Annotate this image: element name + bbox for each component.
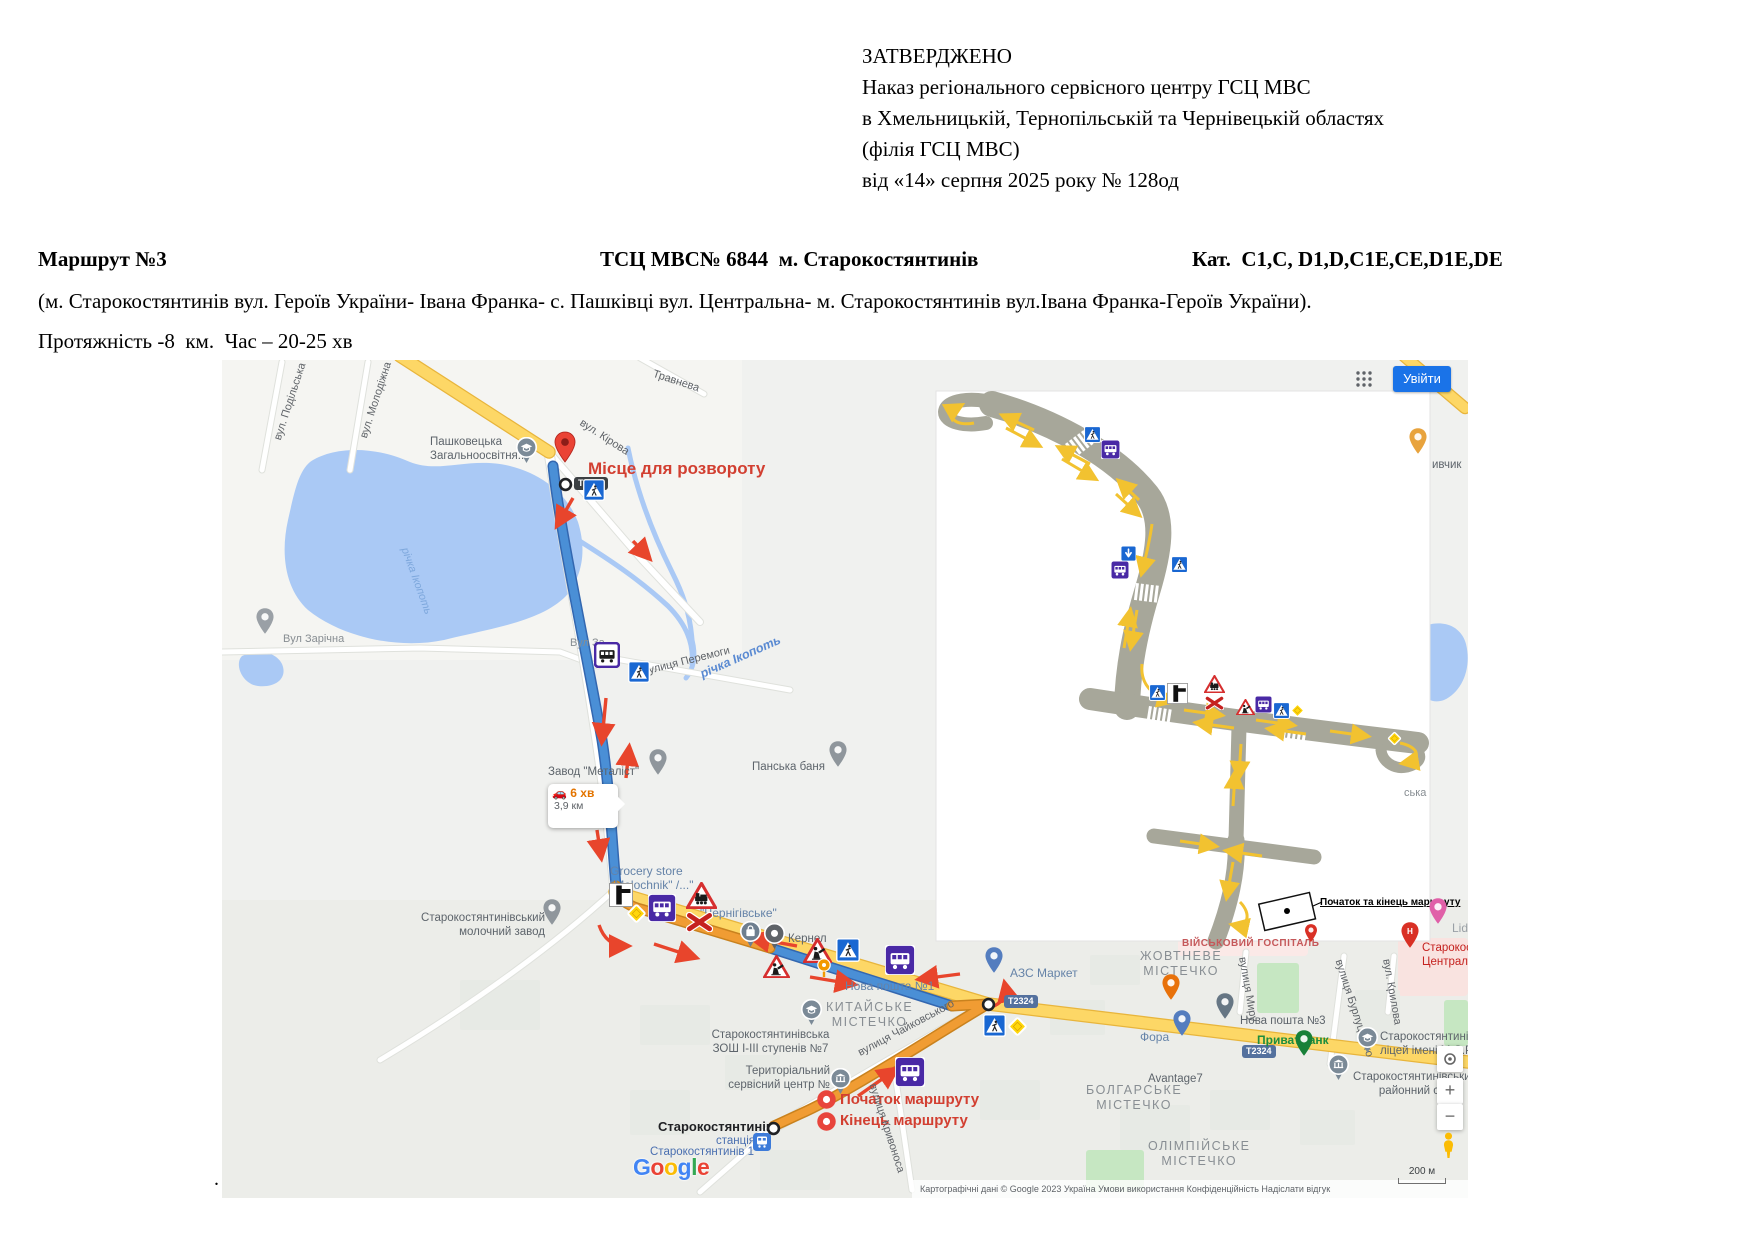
map-label: Нова пошта №1 [845, 979, 934, 993]
google-logo-letter: e [697, 1154, 709, 1180]
map-label: Місце для розвороту [588, 459, 765, 479]
route-start-marker [816, 1089, 837, 1110]
map-label: Територіальний сервісний центр № [704, 1065, 830, 1092]
map-label: Початок маршруту [840, 1091, 979, 1109]
hospital-pin[interactable]: H [1400, 921, 1420, 949]
document-page: ЗАТВЕРДЖЕНО Наказ регіонального сервісно… [0, 0, 1755, 1240]
route-category: Кат. С1,С, D1,D,С1Е,СЕ,D1Е,DE [1192, 247, 1503, 272]
map-label: Старокостянтинівський молочний завод [363, 912, 545, 939]
map-label: Старокостя Центральн [1422, 942, 1468, 969]
bank-pin[interactable] [1294, 1029, 1314, 1057]
banya-pin[interactable] [828, 740, 848, 768]
travel-time-callout[interactable]: 🚗 6 хв 3,9 км [548, 784, 618, 828]
signin-button[interactable]: Увійти [1393, 366, 1451, 392]
route-length: Протяжність -8 км. Час – 20-25 хв [38, 329, 353, 354]
school-pin[interactable] [515, 437, 538, 464]
store-pin[interactable] [1172, 1009, 1192, 1037]
map-label: Старокостянтинівська ЗОШ І-ІІІ ступенів … [698, 1029, 843, 1056]
kernel-pin[interactable] [763, 923, 786, 950]
approval-line: Наказ регіонального сервісного центру ГС… [862, 75, 1311, 100]
route-point [981, 997, 996, 1012]
attribution-bar: Картографічні дані © Google 2023 Україна… [912, 1180, 1468, 1198]
zoom-in-button[interactable]: + [1437, 1078, 1463, 1104]
direction-sign-icon [1121, 546, 1136, 561]
route-point [766, 1121, 781, 1136]
map-label: Lider [1452, 921, 1468, 935]
hospital-pin[interactable] [1304, 923, 1318, 943]
route-point [558, 477, 573, 492]
minor-road-junction-sign-icon [1167, 683, 1188, 704]
svg-text:H: H [1407, 927, 1413, 936]
my-location-button[interactable] [1437, 1046, 1463, 1072]
bus-stop-sign-icon [895, 1057, 925, 1087]
railway-crossing-sign-icon [686, 882, 717, 909]
bus-stop-sign-icon [594, 642, 620, 668]
callout-distance: 3,9 км [554, 800, 614, 812]
map-scale: 200 м [1398, 1166, 1446, 1184]
map-label: АЗС Маркет [1010, 966, 1078, 980]
roadworks-sign-icon [1236, 699, 1255, 716]
pedestrian-crossing-sign-icon [836, 938, 860, 962]
map-label: ПриватБанк [1257, 1033, 1329, 1047]
map-label: ська [1404, 787, 1426, 800]
pedestrian-crossing-sign-icon [628, 661, 650, 683]
google-logo: Google [633, 1154, 709, 1181]
map-label: БОЛГАРСЬКЕ МІСТЕЧКО [1086, 1083, 1182, 1113]
priority-road-sign-icon [1290, 703, 1305, 718]
zoom-out-button[interactable]: − [1437, 1104, 1463, 1130]
single-track-railway-cross-sign-icon [686, 912, 713, 932]
priority-road-sign-icon [1007, 1016, 1028, 1037]
route-end-marker [816, 1111, 837, 1132]
map-label: Нова пошта №3 [1240, 1015, 1326, 1029]
pedestrian-crossing-sign-icon [1149, 684, 1166, 701]
uturn-marker-pin[interactable] [553, 431, 577, 463]
attribution-text: Картографічні дані © Google 2023 Україна… [920, 1184, 1330, 1194]
scale-bar [1398, 1178, 1446, 1184]
map-label: ВІЙСЬКОВИЙ ГОСПІТАЛЬ [1182, 938, 1319, 950]
school-pin[interactable] [800, 999, 823, 1026]
priority-road-sign-icon [626, 903, 647, 924]
map-label: Т2324 [1004, 995, 1038, 1008]
lyceum-pin[interactable] [1356, 1027, 1379, 1054]
scale-label: 200 м [1409, 1166, 1435, 1177]
single-track-railway-cross-sign-icon [1205, 696, 1224, 710]
priority-road-sign-icon [1387, 731, 1402, 746]
map-label: ОЛІМПІЙСЬКЕ МІСТЕЧКО [1148, 1139, 1250, 1169]
roadworks-sign-icon [763, 955, 790, 979]
car-icon: 🚗 [552, 786, 567, 800]
map-label: Пашковецька Загальноосвітня... [430, 436, 527, 463]
pedestrian-crossing-sign-icon [1273, 702, 1290, 719]
map-label: ЖОВТНЕВЕ МІСТЕЧКО [1140, 949, 1222, 979]
pedestrian-crossing-sign-icon [1171, 556, 1188, 573]
place-pin[interactable] [255, 607, 275, 635]
dairy-plant-pin[interactable] [542, 898, 562, 926]
google-logo-letter: g [678, 1154, 692, 1180]
orange-balloon-marker-icon [816, 958, 832, 978]
pegman-icon[interactable] [1441, 1132, 1456, 1159]
approval-line: в Хмельницькій, Тернопільській та Чернів… [862, 106, 1384, 131]
bus-stop-sign-icon [1255, 696, 1272, 713]
map-label: Вул Зарічна [283, 633, 344, 646]
shop-pin[interactable] [739, 921, 762, 948]
gas-station-pin[interactable] [984, 946, 1004, 974]
google-logo-letter: o [650, 1154, 664, 1180]
route-number: Маршрут №3 [38, 247, 167, 272]
approval-line: ЗАТВЕРДЖЕНО [862, 44, 1012, 69]
route-description: (м. Старокостянтинів вул. Героїв України… [38, 289, 1312, 314]
pedestrian-crossing-sign-icon [583, 479, 605, 501]
bus-stop-sign-icon [1101, 440, 1120, 459]
approval-line: (філія ГСЦ МВС) [862, 137, 1020, 162]
google-logo-letter: o [664, 1154, 678, 1180]
route-center: ТСЦ МВС№ 6844 м. Старокостянтинів [600, 247, 978, 272]
apps-grid-icon[interactable] [1355, 370, 1373, 393]
bus-stop-sign-icon [1111, 561, 1129, 579]
pedestrian-crossing-sign-icon [983, 1014, 1006, 1037]
railway-crossing-sign-icon [1204, 675, 1225, 693]
callout-time-row: 🚗 6 хв [552, 786, 614, 800]
bus-stop-sign-icon [885, 945, 915, 975]
map-canvas[interactable]: вул. Подільськавул. МолодіжнаТравневавул… [222, 360, 1468, 1198]
factory-pin[interactable] [648, 748, 668, 776]
google-logo-letter: G [633, 1154, 650, 1180]
bus-stop-sign-icon [648, 894, 676, 922]
court-pin[interactable] [1327, 1054, 1350, 1081]
map-label: Фора [1140, 1030, 1169, 1044]
page-dot: . [214, 1168, 219, 1191]
map-label: Кінець маршруту [840, 1112, 968, 1130]
lider-pin[interactable] [1428, 897, 1448, 925]
post-office-pin[interactable] [1215, 992, 1235, 1020]
map-label: Панська баня [752, 761, 825, 775]
map-label: Завод "Металіст" [548, 766, 639, 780]
pedestrian-crossing-sign-icon [1084, 426, 1101, 443]
cafe-pin[interactable] [1161, 973, 1181, 1001]
poi-pin[interactable] [1408, 427, 1428, 455]
map-label: ивчик [1432, 459, 1461, 473]
approval-line: від «14» серпня 2025 року № 128од [862, 168, 1179, 193]
callout-time: 6 хв [570, 786, 594, 800]
